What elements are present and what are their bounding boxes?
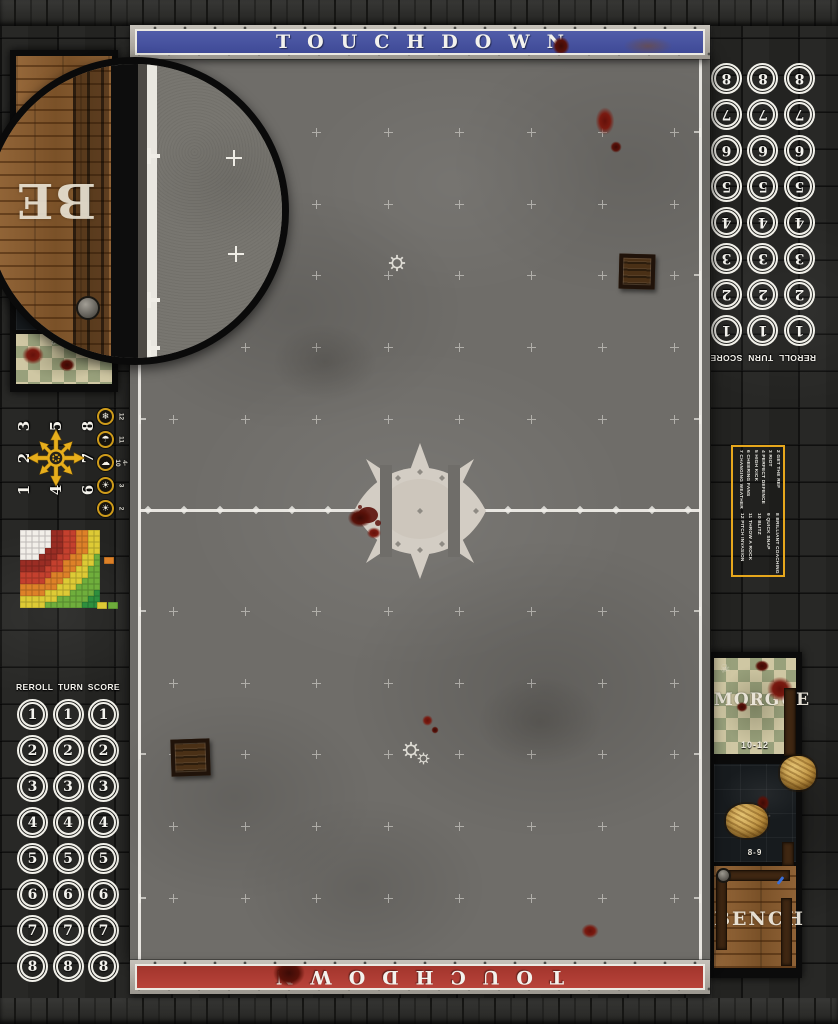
magnified-bench-text: BE: [0, 172, 96, 228]
kickoff-entry: 12 PITCH INVASION: [737, 513, 744, 574]
wall-slab-strip: [0, 0, 838, 26]
pitch-grid-mark: [455, 200, 464, 209]
tracker-row: 555: [16, 842, 120, 875]
wood-beam: [784, 688, 796, 756]
tracker-circle-8[interactable]: 8: [20, 954, 45, 979]
boundary-tick: [699, 894, 701, 903]
sun-cloud-icon: ☁: [97, 454, 114, 471]
tracker-circle-8[interactable]: 8: [714, 66, 739, 91]
tracker-header-label: SCORE: [88, 682, 120, 692]
boundary-tick: [699, 415, 701, 424]
weather-roll-label: 3: [118, 481, 125, 491]
boundary-tick: [139, 415, 141, 424]
tracker-circle-2[interactable]: 2: [20, 738, 45, 763]
tracker-circle-3[interactable]: 3: [20, 774, 45, 799]
range-ruler-swatch: [104, 557, 114, 564]
pitch-grid-mark: [241, 750, 250, 759]
tracker-circle-3[interactable]: 3: [751, 246, 776, 271]
pitch-grid-mark: [455, 415, 464, 424]
tracker-circle-4[interactable]: 4: [787, 210, 812, 235]
pitch-grid-mark: [384, 894, 393, 903]
pitch-grid-mark: [169, 415, 178, 424]
pitch-grid-mark: [527, 343, 536, 352]
boundary-tick: [139, 894, 141, 903]
tracker-circle-6[interactable]: 6: [20, 882, 45, 907]
rain-cloud-icon: ☂: [97, 431, 114, 448]
pitch-grid-mark: [670, 679, 679, 688]
tracker-row: 888: [16, 950, 120, 983]
pitch-grid-mark: [455, 343, 464, 352]
pitch-grid-mark: [312, 128, 321, 137]
boundary-tick: [147, 148, 151, 164]
wood-beam: [716, 874, 727, 950]
pitch-grid-mark: [598, 200, 607, 209]
pitch-grid-mark: [598, 894, 607, 903]
tracker-circle-6[interactable]: 6: [751, 138, 776, 163]
tracker-circle-7[interactable]: 7: [91, 918, 116, 943]
tracker-circle-5[interactable]: 5: [20, 846, 45, 871]
blood-splatter: [549, 33, 573, 55]
pitch-grid-mark: [670, 200, 679, 209]
tracker-row: 111: [710, 314, 816, 347]
tracker-circle-6[interactable]: 6: [787, 138, 812, 163]
tracker-circle-5[interactable]: 5: [91, 846, 116, 871]
boundary-tick: [699, 271, 701, 280]
tracker-row: 666: [16, 878, 120, 911]
tracker-right: REROLLTURNSCORE111222333444555666777888: [710, 62, 816, 363]
tracker-row: 444: [710, 206, 816, 239]
pitch-grid-mark: [312, 894, 321, 903]
pitch-grid-mark: [241, 607, 250, 616]
weather-roll-label: 4-10: [114, 458, 128, 468]
kickoff-entry: 3 RIOT: [766, 450, 773, 509]
boundary-tick: [699, 750, 701, 759]
tracker-header-label: REROLL: [779, 353, 816, 363]
tracker-circle-2[interactable]: 2: [91, 738, 116, 763]
magnified-boundary-line: [147, 64, 157, 358]
tracker-header-row: REROLLTURNSCORE: [710, 353, 816, 363]
tracker-row: 111: [16, 698, 120, 731]
pitch-grid-mark: [384, 128, 393, 137]
scatter-template: 12345678: [8, 410, 104, 506]
pitch-grid-mark: [455, 128, 464, 137]
pitch-grid-mark: [527, 894, 536, 903]
tracker-row: 555: [710, 170, 816, 203]
tracker-row: 888: [710, 62, 816, 95]
kickoff-column-1: 2 GET THE REF3 RIOT4 PERFECT DEFENCE5 HI…: [736, 450, 780, 509]
pitch-grid-mark: [670, 271, 679, 280]
tracker-circle-2[interactable]: 2: [751, 282, 776, 307]
boundary-tick: [147, 292, 151, 308]
sun-icon: ☀: [97, 477, 114, 494]
pitch-grid-mark: [670, 750, 679, 759]
game-mat: TOUCHDOWN: [0, 0, 838, 1024]
kickoff-entry: 7 CHANGING WEATHER: [736, 450, 743, 509]
tracker-circle-2[interactable]: 2: [56, 738, 81, 763]
tracker-circle-3[interactable]: 3: [91, 774, 116, 799]
pitch-grid-mark: [312, 271, 321, 280]
right-dugout: MORGUE 10-12 ☠ K.O. 8-9 BENCH: [708, 652, 802, 978]
tracker-circle-6[interactable]: 6: [714, 138, 739, 163]
kickoff-entry: 9 QUICK SNAP: [764, 513, 771, 574]
tracker-circle-8[interactable]: 8: [787, 66, 812, 91]
stain: [450, 657, 630, 787]
tracker-row: 444: [16, 806, 120, 839]
range-ruler: [20, 530, 100, 608]
skull-icon: ☠: [718, 661, 731, 676]
blood-splatter: [734, 700, 750, 714]
tracker-circle-2[interactable]: 2: [787, 282, 812, 307]
pitch-grid-mark: [670, 822, 679, 831]
tracker-circle-5[interactable]: 5: [56, 846, 81, 871]
kickoff-entry: 8 BRILLIANT COACHING: [772, 513, 779, 574]
pitch-grid-mark: [527, 271, 536, 280]
tracker-row: 777: [710, 98, 816, 131]
pitch-grid-mark: [312, 750, 321, 759]
tracker-row: 666: [710, 134, 816, 167]
weather-row: ☂11: [97, 431, 126, 448]
pitch-grid-mark: [241, 415, 250, 424]
weather-roll-label: 2: [118, 504, 125, 514]
range-ruler-swatch: [108, 602, 118, 609]
kickoff-entry: 10 BLITZ: [755, 513, 762, 574]
tracker-circle-7[interactable]: 7: [56, 918, 81, 943]
tracker-circle-4[interactable]: 4: [91, 810, 116, 835]
kickoff-table: 2 GET THE REF3 RIOT4 PERFECT DEFENCE5 HI…: [731, 445, 785, 577]
pitch-grid-mark: [241, 894, 250, 903]
tracker-header-label: REROLL: [16, 682, 53, 692]
tracker-left: REROLLTURNSCORE111222333444555666777888: [16, 682, 120, 983]
pitch-grid-mark: [384, 415, 393, 424]
pitch-grid-mark: [670, 128, 679, 137]
wood-beam: [781, 898, 792, 966]
tracker-circle-1[interactable]: 1: [787, 318, 812, 343]
pitch-grid-mark: [527, 128, 536, 137]
tracker-circle-7[interactable]: 7: [20, 918, 45, 943]
kickoff-entry: 5 HIGH KICK: [751, 450, 758, 509]
tracker-row: 222: [710, 278, 816, 311]
pitch-grid-mark: [169, 822, 178, 831]
pitch-grid-mark: [527, 415, 536, 424]
pitch-grid-mark: [455, 607, 464, 616]
boundary-tick: [147, 340, 151, 356]
tracker-circle-2[interactable]: 2: [714, 282, 739, 307]
tracker-circle-1[interactable]: 1: [20, 702, 45, 727]
kickoff-column-2: 8 BRILLIANT COACHING9 QUICK SNAP10 BLITZ…: [736, 513, 780, 574]
pitch-grid-mark: [384, 607, 393, 616]
tracker-circle-8[interactable]: 8: [751, 66, 776, 91]
kickoff-entry: 11 THROW A ROCK: [746, 513, 753, 574]
touchdown-banner-bar: TOUCHDOWN: [135, 964, 705, 990]
touchdown-text: TOUCHDOWN: [259, 31, 581, 53]
pitch-grid-mark: [527, 200, 536, 209]
tracker-row: 333: [16, 770, 120, 803]
tracker-circle-3[interactable]: 3: [714, 246, 739, 271]
boundary-tick: [699, 607, 701, 616]
tracker-row: 777: [16, 914, 120, 947]
pitch-grid-mark: [226, 150, 242, 166]
touchdown-banner-bottom: TOUCHDOWN: [130, 960, 710, 994]
tracker-circle-1[interactable]: 1: [751, 318, 776, 343]
pitch-grid-mark: [169, 894, 178, 903]
pitch-grid-mark: [169, 607, 178, 616]
weather-row: ☀3: [97, 477, 126, 494]
tracker-circle-6[interactable]: 6: [91, 882, 116, 907]
rust-stain: [613, 33, 683, 55]
tracker-circle-8[interactable]: 8: [56, 954, 81, 979]
tracker-circle-3[interactable]: 3: [787, 246, 812, 271]
tracker-circle-3[interactable]: 3: [56, 774, 81, 799]
pitch-grid-mark: [670, 894, 679, 903]
tracker-circle-4[interactable]: 4: [20, 810, 45, 835]
weather-row: ☀2: [97, 500, 126, 517]
pitch-grid-mark: [384, 271, 393, 280]
pitch-grid-mark: [312, 679, 321, 688]
tracker-circle-4[interactable]: 4: [751, 210, 776, 235]
wood-beam: [782, 842, 794, 866]
tracker-circle-1[interactable]: 1: [714, 318, 739, 343]
range-ruler-swatch: [97, 602, 107, 609]
tracker-circle-7[interactable]: 7: [714, 102, 739, 127]
touchdown-banner-bar: TOUCHDOWN: [135, 29, 705, 55]
tracker-circle-1[interactable]: 1: [91, 702, 116, 727]
stone-knob: [716, 868, 731, 883]
pitch-grid-mark: [312, 607, 321, 616]
weather-roll-label: 12: [118, 412, 125, 422]
tracker-circle-4[interactable]: 4: [714, 210, 739, 235]
pitch-grid-mark: [598, 607, 607, 616]
kickoff-entry: 6 CHEERING FANS: [744, 450, 751, 509]
scatter-compass-icon: [25, 427, 87, 489]
gear-icon: [388, 254, 406, 272]
tracker-header-label: TURN: [748, 353, 773, 363]
gear-icon: [417, 752, 430, 765]
right-dugout-bench: BENCH: [714, 866, 796, 968]
right-dugout-morgue: MORGUE 10-12 ☠: [714, 658, 796, 754]
pitch-grid-mark: [455, 894, 464, 903]
pitch-grid-mark: [169, 679, 178, 688]
tracker-circle-5[interactable]: 5: [787, 174, 812, 199]
tracker-circle-8[interactable]: 8: [91, 954, 116, 979]
weather-roll-label: 11: [118, 435, 125, 445]
tracker-circle-7[interactable]: 7: [751, 102, 776, 127]
tracker-row: 222: [16, 734, 120, 767]
touchdown-banner-top: TOUCHDOWN: [130, 25, 710, 59]
blood-splatter: [752, 658, 772, 674]
tracker-row: 333: [710, 242, 816, 275]
tracker-circle-4[interactable]: 4: [56, 810, 81, 835]
kickoff-entry: 4 PERFECT DEFENCE: [758, 450, 765, 509]
tracker-circle-5[interactable]: 5: [714, 174, 739, 199]
pitch-grid-mark: [455, 822, 464, 831]
pitch-grid-mark: [228, 246, 244, 262]
pitch-grid-mark: [598, 271, 607, 280]
pitch-grid-mark: [455, 271, 464, 280]
hay-bale: [780, 756, 816, 790]
boundary-tick: [699, 128, 701, 137]
tracker-circle-6[interactable]: 6: [56, 882, 81, 907]
pitch-grid-mark: [241, 822, 250, 831]
pitch-grid-mark: [384, 822, 393, 831]
pitch-grid-mark: [384, 750, 393, 759]
tracker-circle-7[interactable]: 7: [787, 102, 812, 127]
pitch-grid-mark: [312, 822, 321, 831]
sun-icon: ☀: [97, 500, 114, 517]
tracker-header-label: TURN: [58, 682, 83, 692]
wooden-crate: [619, 254, 656, 290]
magnified-dugout-frame: [111, 64, 137, 358]
kickoff-table-text: 2 GET THE REF3 RIOT4 PERFECT DEFENCE5 HI…: [736, 450, 780, 572]
tracker-header-label: SCORE: [710, 353, 742, 363]
hay-bale: [726, 804, 768, 838]
stone-knob: [76, 296, 100, 320]
magnified-pitch: [157, 64, 282, 358]
weather-row: ❄12: [97, 408, 126, 425]
pitch-grid-mark: [598, 415, 607, 424]
weather-table: ❄12☂11☁4-10☀3☀2: [97, 408, 126, 517]
snow-cloud-icon: ❄: [97, 408, 114, 425]
pitch-grid-mark: [527, 607, 536, 616]
pitch-grid-mark: [670, 415, 679, 424]
magnifier-inset: BE: [0, 57, 289, 365]
kickoff-entry: 2 GET THE REF: [773, 450, 780, 509]
wooden-crate: [170, 738, 210, 776]
tracker-header-row: REROLLTURNSCORE: [16, 682, 120, 692]
pitch-grid-mark: [670, 343, 679, 352]
pitch-grid-mark: [384, 200, 393, 209]
boundary-tick: [139, 750, 141, 759]
tracker-circle-5[interactable]: 5: [751, 174, 776, 199]
pitch-grid-mark: [670, 607, 679, 616]
pitch-grid-mark: [598, 822, 607, 831]
pitch-grid-mark: [527, 822, 536, 831]
pitch-grid-mark: [312, 200, 321, 209]
boundary-tick: [139, 607, 141, 616]
wall-slab-strip: [0, 998, 838, 1024]
blood-splatter: [56, 356, 78, 374]
pitch-grid-mark: [598, 343, 607, 352]
magnified-wall-gap: [138, 64, 147, 358]
pitch-grid-mark: [241, 679, 250, 688]
weather-row: ☁4-10: [97, 454, 126, 471]
pitch-grid-mark: [384, 679, 393, 688]
tracker-circle-1[interactable]: 1: [56, 702, 81, 727]
